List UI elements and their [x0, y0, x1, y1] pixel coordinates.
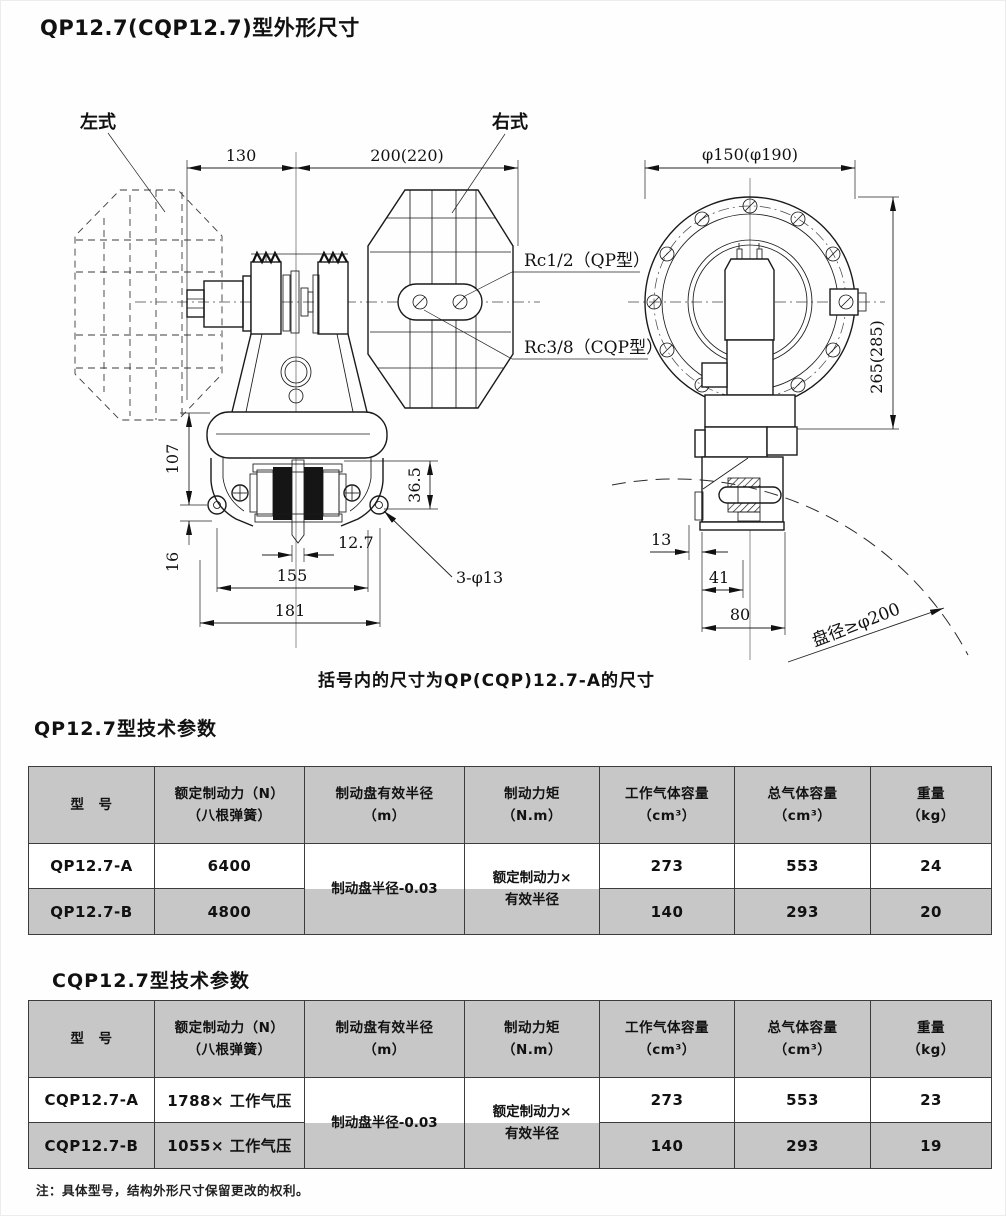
right-type-label: 右式	[492, 111, 528, 133]
disc-slot	[292, 460, 304, 543]
left-type-leader	[108, 133, 165, 212]
table-title-qp: QP12.7型技术参数	[34, 714, 217, 741]
col-header-radius: 制动盘有效半径（m）	[305, 767, 465, 844]
cell-model: CQP12.7-A	[29, 1078, 155, 1123]
svg-text:φ150(φ190): φ150(φ190)	[702, 145, 798, 164]
svg-text:265(285): 265(285)	[867, 320, 886, 394]
svg-text:41: 41	[709, 568, 729, 587]
cell-force: 6400	[155, 844, 305, 889]
table-title-cqp: CQP12.7型技术参数	[52, 966, 250, 993]
cell-model: QP12.7-B	[29, 889, 155, 934]
dim-3-phi13: 3-φ13	[384, 511, 503, 587]
left-unit-dashed-outline	[75, 190, 222, 420]
caliper-base	[207, 412, 387, 458]
cell-total-vol: 293	[735, 889, 871, 934]
col-header-model: 型 号	[29, 1001, 155, 1078]
side-view: φ150(φ190) 265(285) 盘径≥φ200 1	[612, 145, 968, 662]
cell-model: QP12.7-A	[29, 844, 155, 889]
cell-force: 4800	[155, 889, 305, 934]
left-type-label: 左式	[80, 111, 116, 133]
brake-pad-left	[273, 467, 292, 520]
side-clamp-block	[830, 289, 858, 315]
spring-left	[253, 253, 280, 262]
spec-table-qp: 型 号 额定制动力（N）（八根弹簧） 制动盘有效半径（m） 制动力矩（N.m） …	[28, 766, 992, 935]
col-header-model: 型 号	[29, 767, 155, 844]
air-port-boss	[398, 284, 482, 320]
svg-text:181: 181	[275, 601, 306, 620]
cell-total-vol: 553	[735, 1078, 871, 1123]
disc-diameter-label: 盘径≥φ200	[809, 599, 903, 651]
col-header-torque: 制动力矩（N.m）	[465, 767, 600, 844]
svg-text:80: 80	[730, 605, 750, 624]
cell-total-vol: 553	[735, 844, 871, 889]
mount-hole-left	[208, 496, 226, 514]
datasheet-page: QP12.7(CQP12.7)型外形尺寸	[0, 0, 1006, 1216]
dim-41: 41	[702, 560, 743, 598]
clamp-mechanism	[251, 253, 348, 334]
cell-work-vol: 140	[600, 1123, 735, 1168]
col-header-work-vol: 工作气体容量（cm³）	[600, 767, 735, 844]
dim-16: 16	[163, 492, 212, 572]
dim-130: 130	[187, 146, 518, 400]
cell-radius-merged: 制动盘半径-0.03	[305, 844, 465, 934]
svg-text:13: 13	[651, 530, 671, 549]
cell-force: 1788× 工作气压	[155, 1078, 305, 1123]
drawing-caption: 括号内的尺寸为QP(CQP)12.7-A的尺寸	[318, 666, 655, 691]
cell-work-vol: 273	[600, 844, 735, 889]
col-header-total-vol: 总气体容量（cm³）	[735, 767, 871, 844]
right-unit-outline	[368, 190, 513, 408]
footnote: 注：具体型号，结构外形尺寸保留更改的权利。	[36, 1180, 309, 1199]
cell-total-vol: 293	[735, 1123, 871, 1168]
cell-model: CQP12.7-B	[29, 1123, 155, 1168]
cell-weight: 23	[871, 1078, 991, 1123]
dim-12-7: 12.7	[262, 533, 374, 562]
svg-text:155: 155	[277, 566, 308, 585]
housing	[207, 334, 387, 458]
technical-drawing: 左式 右式 130 200(220)	[0, 0, 1006, 700]
right-type-leader	[452, 134, 505, 213]
spec-table-cqp: 型 号 额定制动力（N）（八根弹簧） 制动盘有效半径（m） 制动力矩（N.m） …	[28, 1000, 992, 1169]
col-header-torque: 制动力矩（N.m）	[465, 1001, 600, 1078]
cell-radius-merged: 制动盘半径-0.03	[305, 1078, 465, 1168]
svg-text:130: 130	[226, 146, 257, 165]
col-header-work-vol: 工作气体容量（cm³）	[600, 1001, 735, 1078]
svg-text:3-φ13: 3-φ13	[456, 568, 503, 587]
dim-107: 107	[163, 413, 210, 505]
cell-weight: 19	[871, 1123, 991, 1168]
svg-text:Rc1/2（QP型）: Rc1/2（QP型）	[524, 251, 650, 271]
col-header-total-vol: 总气体容量（cm³）	[735, 1001, 871, 1078]
cell-torque-merged: 额定制动力×有效半径	[465, 844, 600, 934]
cell-work-vol: 140	[600, 889, 735, 934]
col-header-force: 额定制动力（N）（八根弹簧）	[155, 1001, 305, 1078]
shaft-assembly	[187, 276, 251, 331]
cell-work-vol: 273	[600, 1078, 735, 1123]
cell-weight: 24	[871, 844, 991, 889]
brake-pad-right	[304, 467, 323, 520]
caliper-bolt	[719, 487, 781, 503]
dim-36-5: 36.5	[344, 461, 438, 509]
cell-torque-merged: 额定制动力×有效半径	[465, 1078, 600, 1168]
caliper	[208, 458, 388, 543]
col-header-weight: 重量（kg）	[871, 1001, 991, 1078]
svg-text:200(220): 200(220)	[370, 146, 444, 165]
col-header-force: 额定制动力（N）（八根弹簧）	[155, 767, 305, 844]
col-header-radius: 制动盘有效半径（m）	[305, 1001, 465, 1078]
port-label-qp: Rc1/2（QP型）	[463, 251, 650, 297]
svg-text:36.5: 36.5	[405, 467, 424, 503]
svg-text:107: 107	[163, 444, 182, 475]
svg-text:16: 16	[163, 552, 182, 572]
brake-disc-arc: 盘径≥φ200	[612, 479, 968, 662]
front-view: 左式 右式 130 200(220)	[75, 111, 663, 648]
cell-weight: 20	[871, 889, 991, 934]
spring-right	[320, 253, 347, 262]
svg-text:Rc3/8（CQP型）: Rc3/8（CQP型）	[524, 338, 663, 358]
cell-force: 1055× 工作气压	[155, 1123, 305, 1168]
col-header-weight: 重量（kg）	[871, 767, 991, 844]
